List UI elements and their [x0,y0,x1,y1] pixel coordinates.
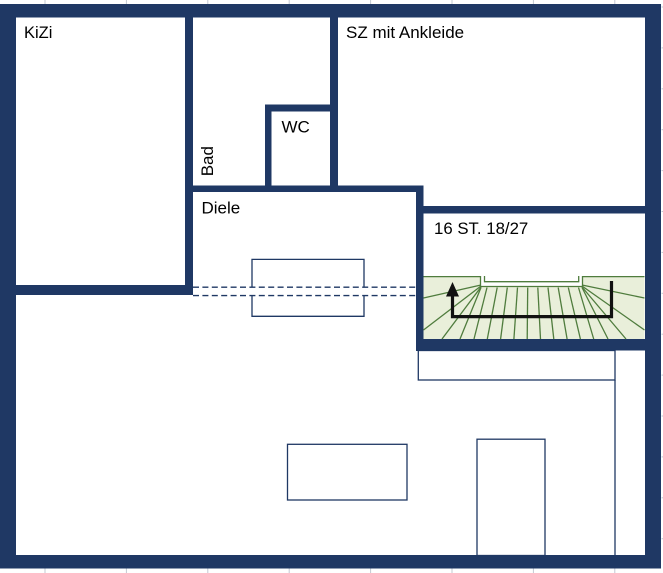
svg-text:Diele: Diele [202,198,241,217]
svg-text:WC: WC [282,117,310,136]
svg-text:KiZi: KiZi [24,24,52,42]
svg-text:16 ST. 18/27: 16 ST. 18/27 [434,219,528,238]
svg-text:SZ mit Ankleide: SZ mit Ankleide [346,23,464,42]
svg-text:Bad: Bad [198,146,217,176]
